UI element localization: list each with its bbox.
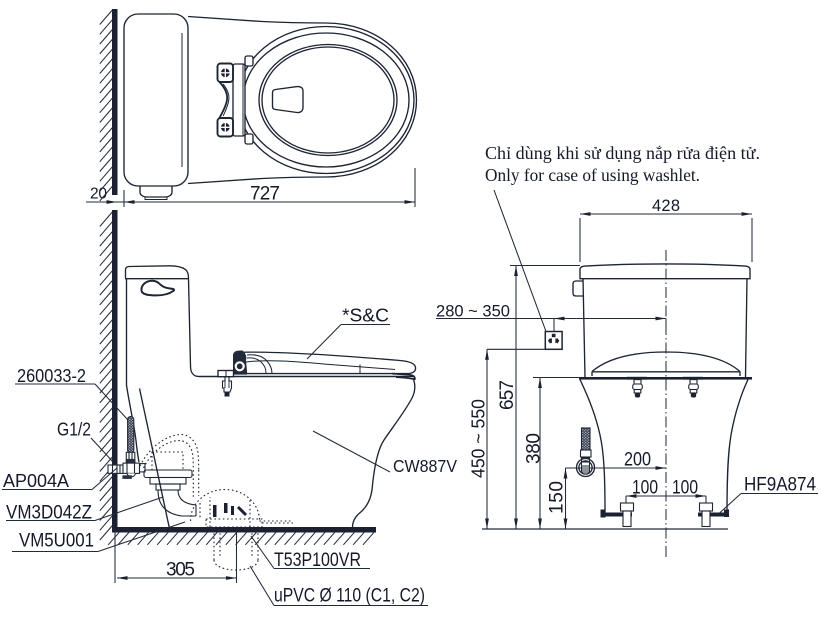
svg-text:uPVC Ø 110 (C1, C2): uPVC Ø 110 (C1, C2) bbox=[274, 586, 425, 607]
svg-text:657: 657 bbox=[497, 380, 518, 410]
svg-text:100: 100 bbox=[672, 478, 698, 499]
svg-text:VM5U001: VM5U001 bbox=[19, 531, 94, 552]
svg-text:CW887V: CW887V bbox=[393, 456, 457, 476]
svg-text:T53P100VR: T53P100VR bbox=[274, 550, 361, 571]
svg-text:20: 20 bbox=[90, 186, 107, 203]
svg-text:200: 200 bbox=[624, 450, 651, 471]
svg-text:305: 305 bbox=[166, 560, 195, 581]
svg-text:AP004A: AP004A bbox=[3, 470, 70, 491]
svg-text:380: 380 bbox=[524, 433, 545, 464]
svg-text:727: 727 bbox=[250, 184, 280, 205]
svg-text:Only for case of using washlet: Only for case of using washlet. bbox=[485, 165, 700, 185]
svg-text:450 ~ 550: 450 ~ 550 bbox=[469, 399, 489, 478]
svg-text:280 ~ 350: 280 ~ 350 bbox=[436, 302, 510, 321]
svg-text:Chỉ dùng khi sử dụng nắp rửa đ: Chỉ dùng khi sử dụng nắp rửa điện tử. bbox=[485, 143, 760, 163]
svg-text:260033-2: 260033-2 bbox=[17, 366, 86, 386]
svg-text:HF9A874: HF9A874 bbox=[744, 475, 816, 496]
svg-text:VM3D042Z: VM3D042Z bbox=[6, 503, 92, 524]
svg-text:100: 100 bbox=[632, 478, 658, 499]
svg-text:*S&C: *S&C bbox=[342, 306, 389, 326]
svg-text:150: 150 bbox=[547, 481, 568, 514]
svg-text:428: 428 bbox=[652, 197, 680, 215]
svg-text:G1/2: G1/2 bbox=[57, 420, 91, 440]
